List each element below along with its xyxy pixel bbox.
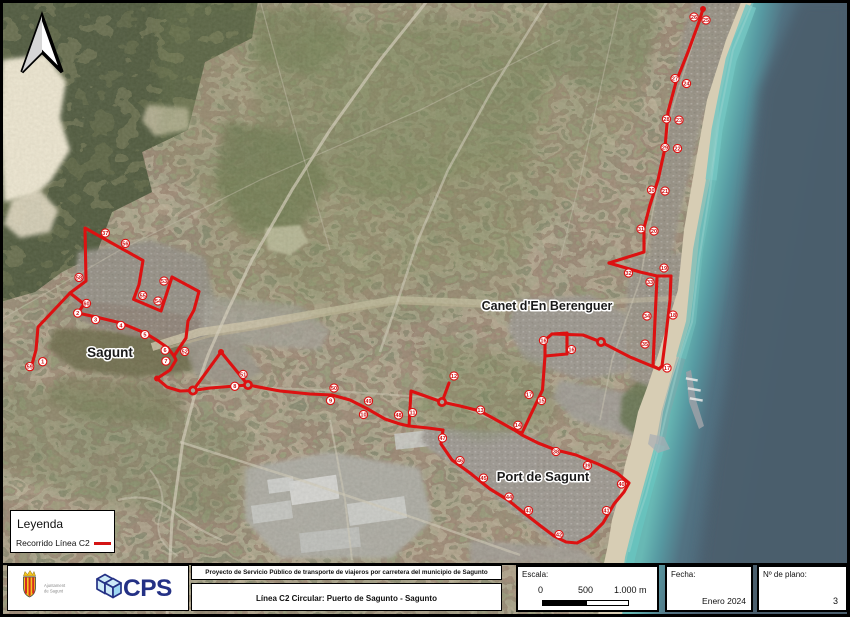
svg-text:44: 44 (506, 495, 513, 501)
svg-text:5: 5 (143, 332, 146, 338)
svg-text:22: 22 (674, 146, 680, 152)
svg-text:Sagunt: Sagunt (87, 345, 133, 360)
svg-text:10: 10 (360, 412, 366, 418)
svg-text:Port de Sagunt: Port de Sagunt (497, 469, 590, 484)
svg-text:35: 35 (642, 342, 648, 348)
svg-text:21: 21 (662, 189, 668, 195)
svg-text:52: 52 (182, 349, 188, 355)
svg-text:19: 19 (661, 266, 667, 272)
svg-text:15: 15 (538, 398, 544, 404)
svg-text:51: 51 (240, 372, 246, 378)
svg-text:1: 1 (41, 360, 44, 366)
svg-text:43: 43 (525, 508, 531, 514)
svg-text:40: 40 (618, 482, 624, 488)
svg-text:9: 9 (329, 398, 332, 404)
svg-text:33: 33 (647, 280, 653, 286)
svg-text:12: 12 (451, 374, 457, 380)
svg-text:17: 17 (526, 392, 532, 398)
svg-text:11: 11 (410, 410, 416, 416)
svg-text:14: 14 (515, 423, 522, 429)
svg-text:53: 53 (161, 279, 167, 285)
svg-text:49: 49 (365, 399, 371, 405)
svg-text:47: 47 (439, 436, 445, 442)
svg-text:23: 23 (676, 118, 682, 124)
svg-text:56: 56 (122, 241, 128, 247)
svg-text:20: 20 (651, 229, 657, 235)
svg-text:60: 60 (83, 301, 89, 307)
svg-text:34: 34 (644, 314, 651, 320)
svg-text:54: 54 (155, 299, 162, 305)
svg-text:45: 45 (480, 476, 486, 482)
svg-text:37: 37 (102, 231, 108, 237)
svg-text:48: 48 (395, 413, 401, 419)
svg-text:18: 18 (670, 313, 676, 319)
svg-text:31: 31 (638, 227, 644, 233)
svg-text:29: 29 (662, 145, 668, 151)
svg-text:26: 26 (691, 15, 697, 21)
svg-text:de Sagunt: de Sagunt (44, 589, 64, 594)
svg-text:6: 6 (164, 348, 167, 354)
svg-text:7: 7 (164, 359, 167, 365)
svg-text:28: 28 (663, 117, 669, 123)
svg-text:41: 41 (603, 508, 609, 514)
svg-text:59: 59 (27, 365, 33, 371)
svg-text:3: 3 (94, 318, 97, 324)
svg-text:8: 8 (233, 384, 236, 390)
svg-text:25: 25 (703, 18, 709, 24)
svg-text:30: 30 (648, 188, 654, 194)
svg-text:38: 38 (553, 449, 559, 455)
svg-text:2: 2 (76, 311, 79, 317)
svg-text:27: 27 (672, 76, 678, 82)
svg-text:CPS: CPS (123, 575, 172, 602)
svg-text:55: 55 (140, 293, 146, 299)
svg-text:13: 13 (477, 408, 483, 414)
svg-text:42: 42 (556, 532, 562, 538)
svg-text:Canet d'En Berenguer: Canet d'En Berenguer (482, 299, 613, 313)
svg-text:46: 46 (457, 458, 463, 464)
svg-text:16: 16 (540, 338, 546, 344)
svg-text:58: 58 (76, 275, 82, 281)
svg-text:16: 16 (568, 347, 574, 353)
svg-text:32: 32 (625, 271, 631, 277)
svg-text:Ajuntament: Ajuntament (44, 583, 66, 588)
svg-text:50: 50 (331, 386, 337, 392)
svg-text:24: 24 (683, 81, 690, 87)
svg-text:17: 17 (664, 366, 670, 372)
